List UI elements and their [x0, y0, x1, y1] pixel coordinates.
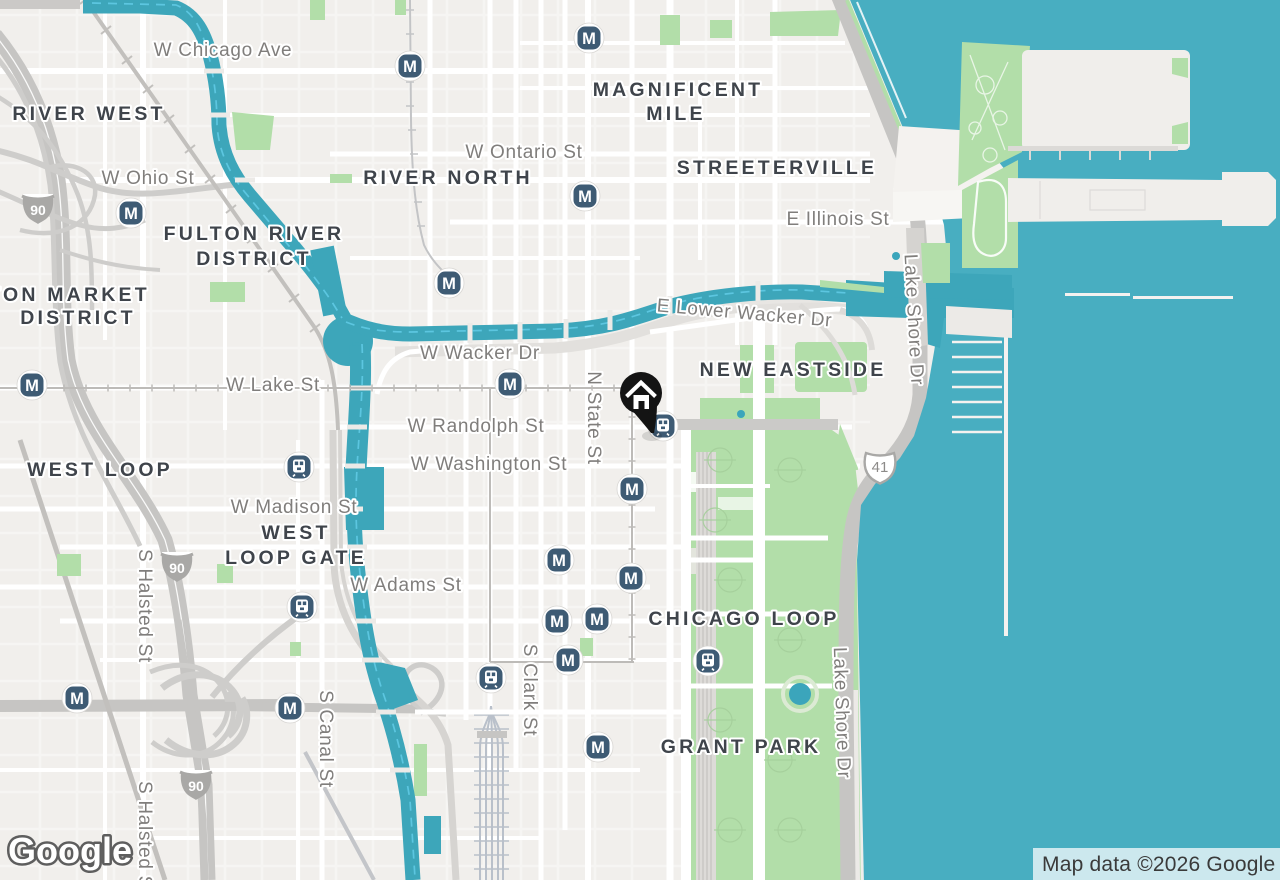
svg-text:M: M — [503, 376, 517, 394]
svg-text:M: M — [624, 570, 638, 588]
svg-text:W Washington St: W Washington St — [411, 454, 568, 475]
svg-text:NEW EASTSIDE: NEW EASTSIDE — [700, 359, 887, 381]
svg-text:DISTRICT: DISTRICT — [20, 307, 136, 329]
svg-text:W Randolph St: W Randolph St — [408, 416, 545, 437]
svg-text:DISTRICT: DISTRICT — [196, 248, 312, 270]
svg-text:W Ohio St: W Ohio St — [102, 168, 195, 189]
svg-text:MAGNIFICENT: MAGNIFICENT — [593, 79, 764, 101]
svg-text:W Madison St: W Madison St — [231, 497, 358, 518]
svg-text:M: M — [283, 700, 297, 718]
svg-text:LOOP GATE: LOOP GATE — [225, 547, 367, 569]
svg-text:M: M — [582, 30, 596, 48]
svg-text:M: M — [591, 739, 605, 757]
svg-text:RIVER WEST: RIVER WEST — [12, 103, 165, 125]
svg-text:S Clark St: S Clark St — [519, 644, 540, 737]
svg-text:FULTON MARKET: FULTON MARKET — [0, 284, 150, 306]
svg-text:M: M — [578, 188, 592, 206]
svg-text:S Halsted St: S Halsted St — [134, 781, 155, 880]
svg-text:RIVER NORTH: RIVER NORTH — [363, 167, 533, 189]
svg-text:W Ontario St: W Ontario St — [465, 142, 582, 163]
svg-text:M: M — [590, 611, 604, 629]
svg-text:WEST: WEST — [261, 522, 330, 544]
svg-text:90: 90 — [30, 202, 46, 218]
svg-text:M: M — [442, 275, 456, 293]
svg-text:WEST LOOP: WEST LOOP — [27, 459, 173, 481]
svg-text:M: M — [70, 690, 84, 708]
svg-text:FULTON RIVER: FULTON RIVER — [164, 223, 345, 245]
svg-text:M: M — [403, 58, 417, 76]
svg-text:Google: Google — [8, 830, 132, 871]
svg-text:MILE: MILE — [646, 103, 705, 125]
svg-text:W Lake St: W Lake St — [226, 375, 320, 396]
svg-text:S Canal St: S Canal St — [315, 690, 336, 788]
svg-text:S Halsted St: S Halsted St — [134, 549, 155, 663]
svg-text:M: M — [625, 481, 639, 499]
svg-text:90: 90 — [169, 560, 185, 576]
svg-text:M: M — [550, 613, 564, 631]
svg-text:E Illinois St: E Illinois St — [786, 209, 889, 230]
svg-text:GRANT PARK: GRANT PARK — [661, 736, 822, 758]
svg-text:W Wacker Dr: W Wacker Dr — [420, 343, 540, 364]
svg-text:90: 90 — [188, 778, 204, 794]
svg-text:M: M — [25, 377, 39, 395]
svg-text:41: 41 — [872, 459, 889, 476]
svg-text:CHICAGO LOOP: CHICAGO LOOP — [648, 608, 839, 630]
svg-text:M: M — [124, 205, 138, 223]
svg-text:Map data ©2026 Google: Map data ©2026 Google — [1042, 853, 1275, 876]
svg-text:M: M — [552, 552, 566, 570]
svg-text:STREETERVILLE: STREETERVILLE — [677, 157, 878, 179]
svg-text:N State St: N State St — [583, 371, 604, 465]
svg-text:M: M — [561, 652, 575, 670]
svg-text:W Adams St: W Adams St — [350, 575, 462, 596]
svg-text:W Chicago Ave: W Chicago Ave — [154, 40, 293, 61]
